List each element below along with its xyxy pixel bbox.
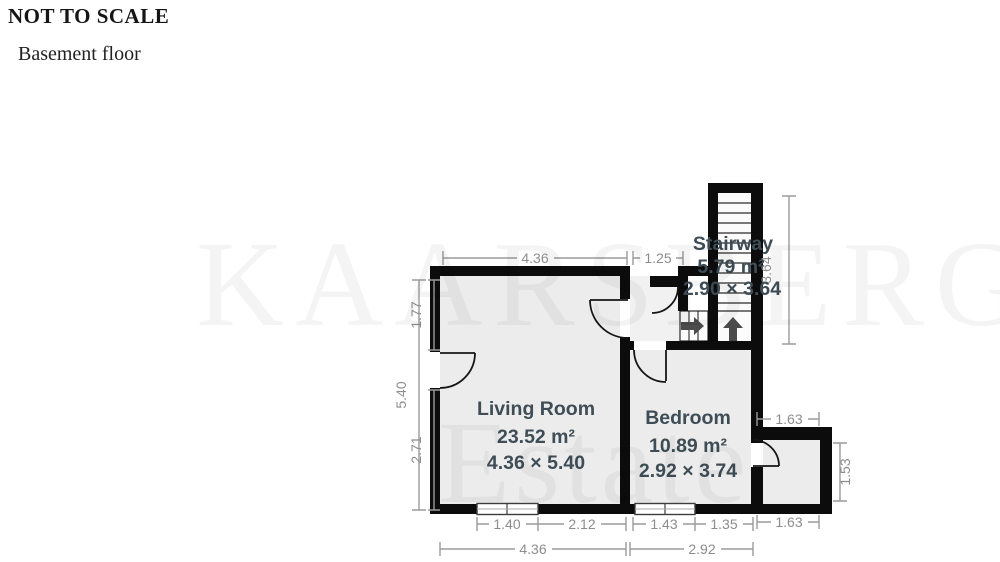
alcove-floor	[763, 440, 820, 504]
dim-bottom-window-living: 1.40	[493, 516, 520, 532]
dim-alcove-right: 1.53	[837, 458, 853, 485]
window-bedroom	[635, 504, 695, 515]
wall-right-lower	[751, 467, 763, 504]
wall-hall-bedroom-right	[666, 341, 763, 350]
bedroom-dimensions: 2.92 × 3.74	[639, 460, 737, 482]
dim-left-total: 5.40	[393, 381, 409, 408]
wall-partition-lower	[620, 337, 630, 514]
wall-left-upper	[430, 266, 440, 352]
stairway-dimensions: 2.90 × 3.64	[683, 278, 781, 300]
wall-stair-divider	[708, 311, 718, 341]
wall-left-lower	[430, 388, 440, 514]
floor-plan: 4.36 1.25 1.77 5.40 2.71 1.40 2.12 1.43 …	[0, 0, 1000, 562]
dim-alcove-top: 1.63	[775, 411, 802, 427]
bedroom-area: 10.89 m²	[649, 435, 728, 457]
wall-alcove-right	[820, 427, 832, 514]
dim-left-upper: 1.77	[408, 301, 424, 328]
living-room-dimensions: 4.36 × 5.40	[487, 452, 585, 474]
wall-top	[430, 266, 630, 276]
dim-alcove-bottom: 1.63	[775, 514, 802, 530]
dim-bottom-living-total: 4.36	[519, 541, 546, 557]
wall-right-column	[751, 183, 763, 443]
bedroom-name: Bedroom	[645, 407, 731, 429]
wall-alcove-top	[751, 427, 830, 440]
wall-partition-upper	[620, 276, 630, 299]
stairway-name: Stairway	[693, 233, 773, 255]
dim-bottom-living-right: 2.12	[568, 516, 595, 532]
dim-bottom-window-bedroom: 1.43	[650, 516, 677, 532]
wall-hall-bedroom-left	[630, 341, 634, 350]
living-room-name: Living Room	[477, 398, 595, 420]
window-living-room	[477, 504, 538, 515]
dim-top-living: 4.36	[521, 250, 548, 266]
living-room-area: 23.52 m²	[497, 426, 576, 448]
stairway-area: 5.79 m²	[697, 256, 765, 278]
dim-left-lower: 2.71	[408, 436, 424, 463]
dim-bottom-bedroom-right: 1.35	[710, 516, 737, 532]
dim-bottom-bedroom-total: 2.92	[688, 541, 715, 557]
dim-top-hall: 1.25	[644, 250, 671, 266]
